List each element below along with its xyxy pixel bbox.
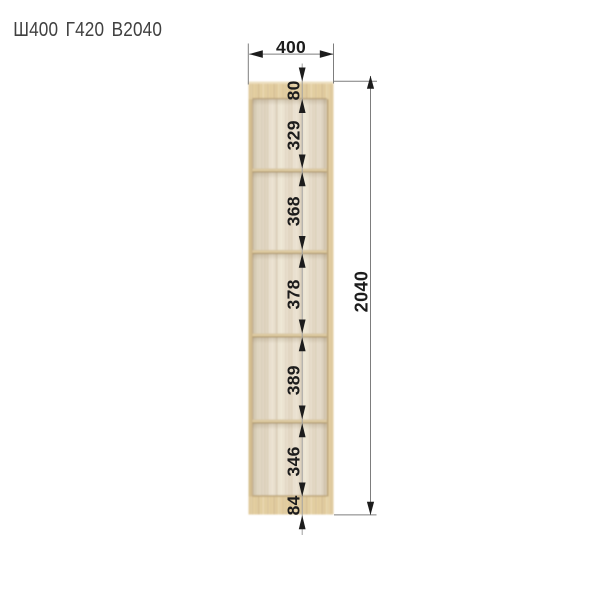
svg-text:Ш400 Г420 В2040: Ш400 Г420 В2040 — [13, 19, 162, 42]
svg-text:346: 346 — [283, 446, 303, 476]
svg-text:80: 80 — [283, 80, 303, 100]
svg-text:84: 84 — [283, 495, 303, 515]
svg-text:329: 329 — [283, 120, 303, 150]
svg-text:378: 378 — [283, 279, 303, 309]
svg-text:2040: 2040 — [351, 271, 371, 313]
svg-text:389: 389 — [283, 365, 303, 395]
svg-text:400: 400 — [276, 37, 306, 57]
svg-text:368: 368 — [283, 196, 303, 226]
